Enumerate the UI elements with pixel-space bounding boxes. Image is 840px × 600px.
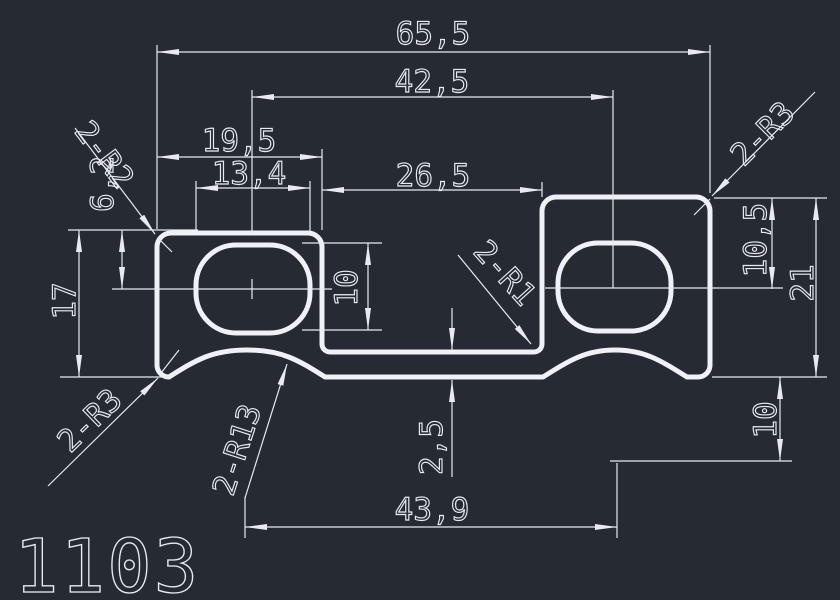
label-left-tab-height: 17 xyxy=(47,282,83,319)
right-obround-hole xyxy=(558,243,671,331)
label-left-tab-width: 19,5 xyxy=(202,123,277,159)
label-web-thickness: 2,5 xyxy=(414,419,450,475)
label-hole-height: 10 xyxy=(329,269,365,306)
dimension-labels: 65,5 42,5 19,5 13,4 26,5 43,9 10 6,2 17 … xyxy=(47,16,821,528)
label-right-tab-height: 21 xyxy=(785,264,821,301)
cad-drawing-viewport: 65,5 42,5 19,5 13,4 26,5 43,9 10 6,2 17 … xyxy=(0,0,840,600)
label-bottom-span: 43,9 xyxy=(395,492,470,528)
label-radius-top-right: 2-R3 xyxy=(724,95,802,173)
leader-2R2-tail xyxy=(158,238,172,252)
label-radius-top-left: 2-R2 xyxy=(67,114,141,195)
label-recess-width: 26,5 xyxy=(396,158,471,194)
centerlines xyxy=(112,279,783,299)
part-contour xyxy=(157,197,710,377)
label-total-width: 65,5 xyxy=(396,16,471,52)
label-hole-width: 13,4 xyxy=(212,156,287,192)
label-top-to-hole-center-right: 10,5 xyxy=(738,203,774,278)
label-hole-center-span: 42,5 xyxy=(395,64,470,100)
part-outline xyxy=(157,197,710,377)
label-radius-bottom-left: 2-R3 xyxy=(51,382,130,460)
label-radius-recess-corner: 2-R1 xyxy=(466,234,543,314)
drawing-number: 1103 xyxy=(14,524,200,600)
cad-drawing: 65,5 42,5 19,5 13,4 26,5 43,9 10 6,2 17 … xyxy=(0,0,840,600)
label-step-height: 10 xyxy=(748,401,784,438)
